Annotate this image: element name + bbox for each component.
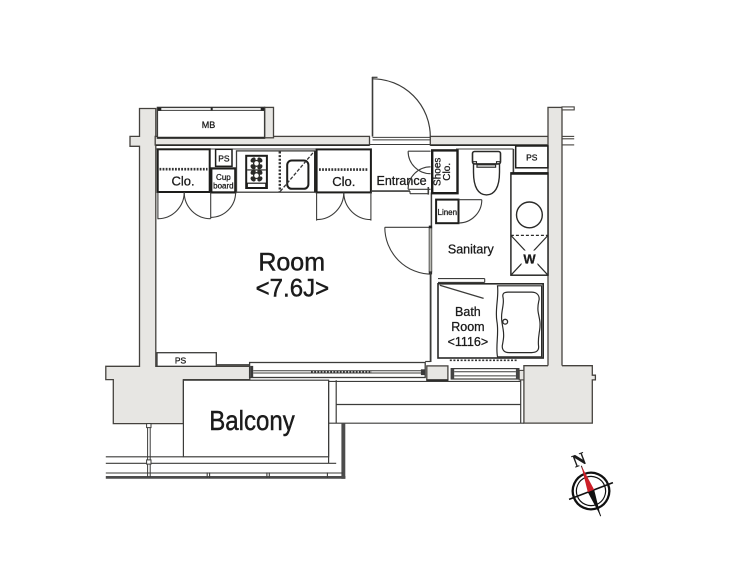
svg-text:Balcony: Balcony — [209, 405, 295, 436]
svg-text:Clo.: Clo. — [332, 174, 355, 189]
svg-text:board: board — [213, 182, 233, 191]
svg-text:Sanitary: Sanitary — [448, 242, 495, 256]
svg-text:PS: PS — [218, 153, 230, 163]
svg-text:Clo.: Clo. — [171, 174, 194, 189]
svg-text:Bath: Bath — [455, 305, 481, 319]
svg-text:Cup: Cup — [216, 173, 231, 182]
svg-text:Entrance: Entrance — [376, 174, 426, 188]
svg-text:Room: Room — [451, 320, 484, 334]
svg-text:<1116>: <1116> — [448, 335, 489, 349]
svg-text:PS: PS — [526, 152, 538, 162]
svg-text:Linen: Linen — [438, 208, 458, 217]
svg-text:W: W — [523, 251, 536, 266]
svg-text:N: N — [569, 448, 588, 471]
svg-text:MB: MB — [202, 120, 216, 130]
svg-text:<7.6J>: <7.6J> — [256, 274, 330, 302]
svg-text:Clo.: Clo. — [442, 163, 453, 181]
svg-text:PS: PS — [175, 356, 187, 366]
svg-text:Room: Room — [258, 248, 325, 276]
